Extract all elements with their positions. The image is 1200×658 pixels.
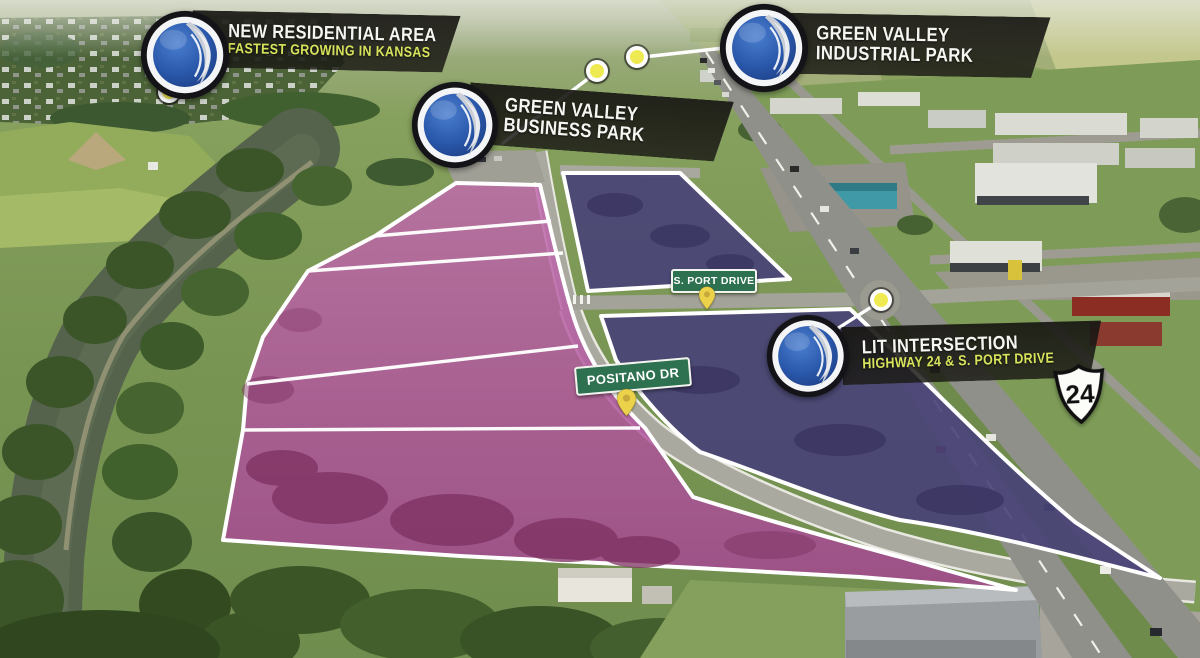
green-valley-logo-icon bbox=[766, 314, 850, 398]
positano-dr-sign-label: POSITANO DR bbox=[586, 365, 680, 388]
positano-dr-map-pin-icon bbox=[617, 388, 636, 417]
green-valley-logo-icon bbox=[719, 3, 809, 93]
industrial-park-location-dot-icon bbox=[626, 46, 648, 68]
green-valley-logo-icon bbox=[411, 81, 499, 169]
svg-text:24: 24 bbox=[1065, 378, 1096, 410]
industrial-park-banner: GREEN VALLEY INDUSTRIAL PARK bbox=[785, 13, 1050, 79]
residential-subtitle: FASTEST GROWING IN KANSAS bbox=[228, 42, 460, 62]
aerial-overview-frame: NEW RESIDENTIAL AREA FASTEST GROWING IN … bbox=[0, 0, 1200, 658]
lit-intersection-location-dot-icon bbox=[870, 289, 892, 311]
industrial-park-subtitle: INDUSTRIAL PARK bbox=[816, 44, 1050, 69]
highway-24-shield-icon: 24 bbox=[1051, 363, 1108, 426]
green-valley-logo-icon bbox=[140, 10, 230, 100]
s-port-drive-map-pin-icon bbox=[699, 286, 715, 310]
residential-banner: NEW RESIDENTIAL AREA FASTEST GROWING IN … bbox=[191, 10, 460, 73]
business-park-location-dot-icon bbox=[586, 60, 608, 82]
